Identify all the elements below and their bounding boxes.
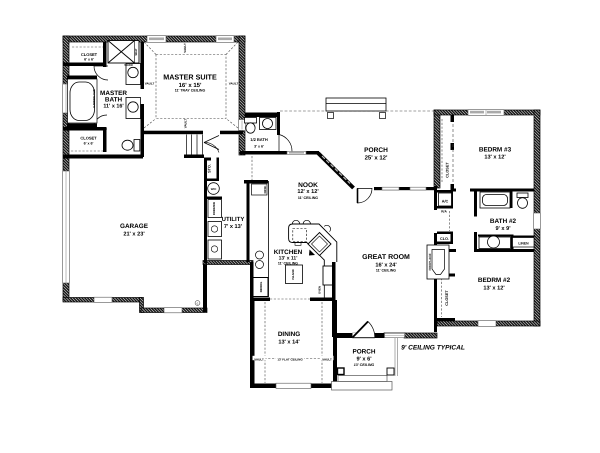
svg-text:PORCH: PORCH bbox=[352, 349, 375, 356]
svg-text:13' x 12': 13' x 12' bbox=[484, 154, 506, 160]
svg-text:VAULT: VAULT bbox=[184, 119, 188, 129]
svg-text:VAULT: VAULT bbox=[183, 43, 187, 53]
svg-text:9' x 6': 9' x 6' bbox=[356, 357, 372, 363]
svg-text:CLO.: CLO. bbox=[440, 237, 449, 241]
svg-text:11' x 16': 11' x 16' bbox=[103, 104, 123, 110]
svg-text:25' x 12': 25' x 12' bbox=[365, 155, 388, 162]
svg-text:DINING: DINING bbox=[278, 331, 300, 338]
svg-text:SEAT: SEAT bbox=[134, 48, 138, 56]
svg-text:9' x 9': 9' x 9' bbox=[495, 226, 511, 232]
svg-text:1/2 BATH: 1/2 BATH bbox=[250, 137, 268, 142]
svg-text:CLOSET: CLOSET bbox=[80, 136, 97, 141]
svg-text:VAULT: VAULT bbox=[254, 357, 264, 361]
svg-text:12' x 12': 12' x 12' bbox=[297, 189, 319, 195]
svg-text:21' x 23': 21' x 23' bbox=[123, 232, 145, 238]
svg-text:PORCH: PORCH bbox=[364, 147, 388, 154]
svg-text:13' x 14': 13' x 14' bbox=[278, 340, 300, 346]
svg-text:BATH #2: BATH #2 bbox=[490, 218, 517, 225]
svg-text:SHWR: SHWR bbox=[124, 63, 133, 67]
svg-text:VAULT: VAULT bbox=[322, 357, 332, 361]
svg-text:c: c bbox=[197, 301, 199, 305]
svg-text:3' x 6': 3' x 6' bbox=[254, 144, 264, 148]
svg-text:W/H: W/H bbox=[211, 187, 216, 191]
svg-text:GARAGE: GARAGE bbox=[120, 223, 149, 230]
svg-text:7' x 13': 7' x 13' bbox=[224, 224, 243, 230]
svg-text:CLOSET: CLOSET bbox=[446, 162, 450, 178]
svg-text:A/C: A/C bbox=[442, 200, 449, 204]
svg-text:VAULT: VAULT bbox=[229, 82, 239, 86]
svg-text:VAULT: VAULT bbox=[145, 82, 155, 86]
svg-text:NOOK: NOOK bbox=[298, 182, 318, 189]
svg-text:OVEN: OVEN bbox=[318, 286, 322, 294]
svg-text:11' TRAY CEILING: 11' TRAY CEILING bbox=[175, 88, 206, 92]
svg-text:9' CEILING TYPICAL: 9' CEILING TYPICAL bbox=[401, 345, 465, 352]
svg-text:R/A: R/A bbox=[441, 210, 447, 214]
svg-text:BEDRM #2: BEDRM #2 bbox=[478, 277, 511, 284]
svg-text:6' x 6': 6' x 6' bbox=[84, 58, 94, 62]
svg-text:CLOSET: CLOSET bbox=[445, 290, 449, 306]
svg-text:FREEZER: FREEZER bbox=[212, 202, 216, 215]
svg-text:DESK: DESK bbox=[263, 186, 267, 194]
svg-text:13' x 12': 13' x 12' bbox=[483, 286, 505, 292]
svg-text:11' CEILING: 11' CEILING bbox=[278, 261, 298, 265]
svg-text:LINEN: LINEN bbox=[518, 242, 529, 246]
svg-text:STO.: STO. bbox=[208, 164, 212, 173]
svg-text:GREAT ROOM: GREAT ROOM bbox=[362, 254, 410, 261]
svg-text:ISLAND: ISLAND bbox=[291, 269, 295, 279]
svg-text:MASTER SUITE: MASTER SUITE bbox=[163, 73, 217, 82]
svg-text:13' CEILING: 13' CEILING bbox=[354, 363, 375, 367]
svg-text:BEDRM #3: BEDRM #3 bbox=[479, 147, 512, 154]
svg-text:UTILITY: UTILITY bbox=[222, 216, 245, 223]
svg-text:13' FLAT CEILING: 13' FLAT CEILING bbox=[277, 357, 303, 361]
svg-text:REFRIG: REFRIG bbox=[259, 282, 263, 293]
svg-text:6' x 6': 6' x 6' bbox=[84, 142, 94, 146]
svg-text:BATH: BATH bbox=[105, 97, 123, 104]
svg-text:11' CEILING: 11' CEILING bbox=[376, 269, 396, 273]
svg-text:FIREPLACE: FIREPLACE bbox=[428, 253, 432, 270]
svg-text:CLOSET: CLOSET bbox=[81, 52, 98, 57]
svg-text:GARDEN TUB: GARDEN TUB bbox=[92, 89, 96, 108]
svg-text:11' CEILING: 11' CEILING bbox=[298, 196, 318, 200]
